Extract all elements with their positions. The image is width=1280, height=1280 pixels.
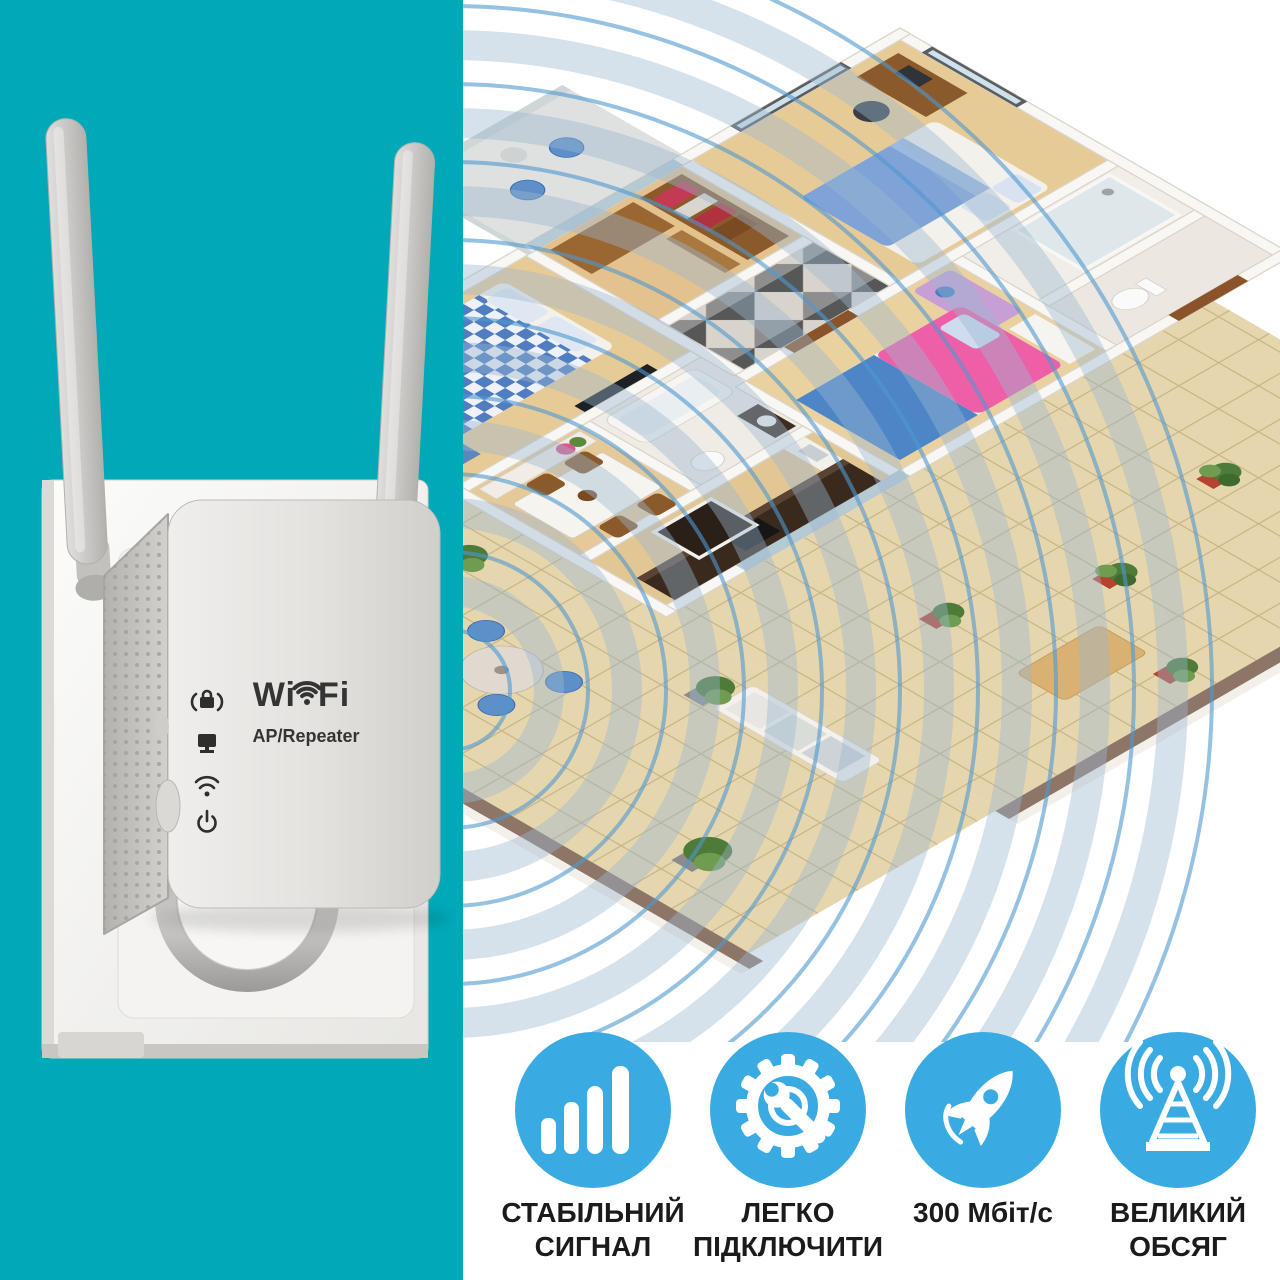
plate-foot bbox=[58, 1032, 144, 1058]
banner-canvas: Wi Fi AP/Repeater bbox=[0, 0, 1280, 1280]
feature-coverage: ВЕЛИКИЙ ОБСЯГ bbox=[1100, 1032, 1256, 1262]
feature-label-line1: ЛЕГКО bbox=[741, 1197, 834, 1228]
feature-label-line2: ПІДКЛЮЧИТИ bbox=[693, 1231, 883, 1262]
brand-text-right: Fi bbox=[318, 676, 350, 714]
reset-button[interactable] bbox=[155, 714, 169, 738]
feature-label-line2: ОБСЯГ bbox=[1129, 1231, 1227, 1262]
feature-speed: 300 Мбіт/с bbox=[905, 1032, 1061, 1228]
feature-label-line1: СТАБІЛЬНИЙ bbox=[501, 1196, 684, 1228]
lan-icon bbox=[198, 734, 216, 753]
feature-label-line1: 300 Мбіт/с bbox=[913, 1197, 1053, 1228]
feature-stable-signal: СТАБІЛЬНИЙ СИГНАЛ bbox=[501, 1032, 684, 1262]
feature-circle bbox=[1100, 1032, 1256, 1188]
side-button[interactable] bbox=[156, 780, 180, 832]
brand-text-left: Wi bbox=[253, 676, 296, 714]
feature-label-line2: СИГНАЛ bbox=[535, 1231, 652, 1262]
brand-subtitle: AP/Repeater bbox=[252, 726, 359, 746]
product-banner: Wi Fi AP/Repeater bbox=[0, 0, 1280, 1280]
feature-label-line1: ВЕЛИКИЙ bbox=[1110, 1196, 1246, 1228]
device-body: Wi Fi AP/Repeater bbox=[104, 500, 440, 934]
wifi-dot bbox=[304, 699, 310, 705]
